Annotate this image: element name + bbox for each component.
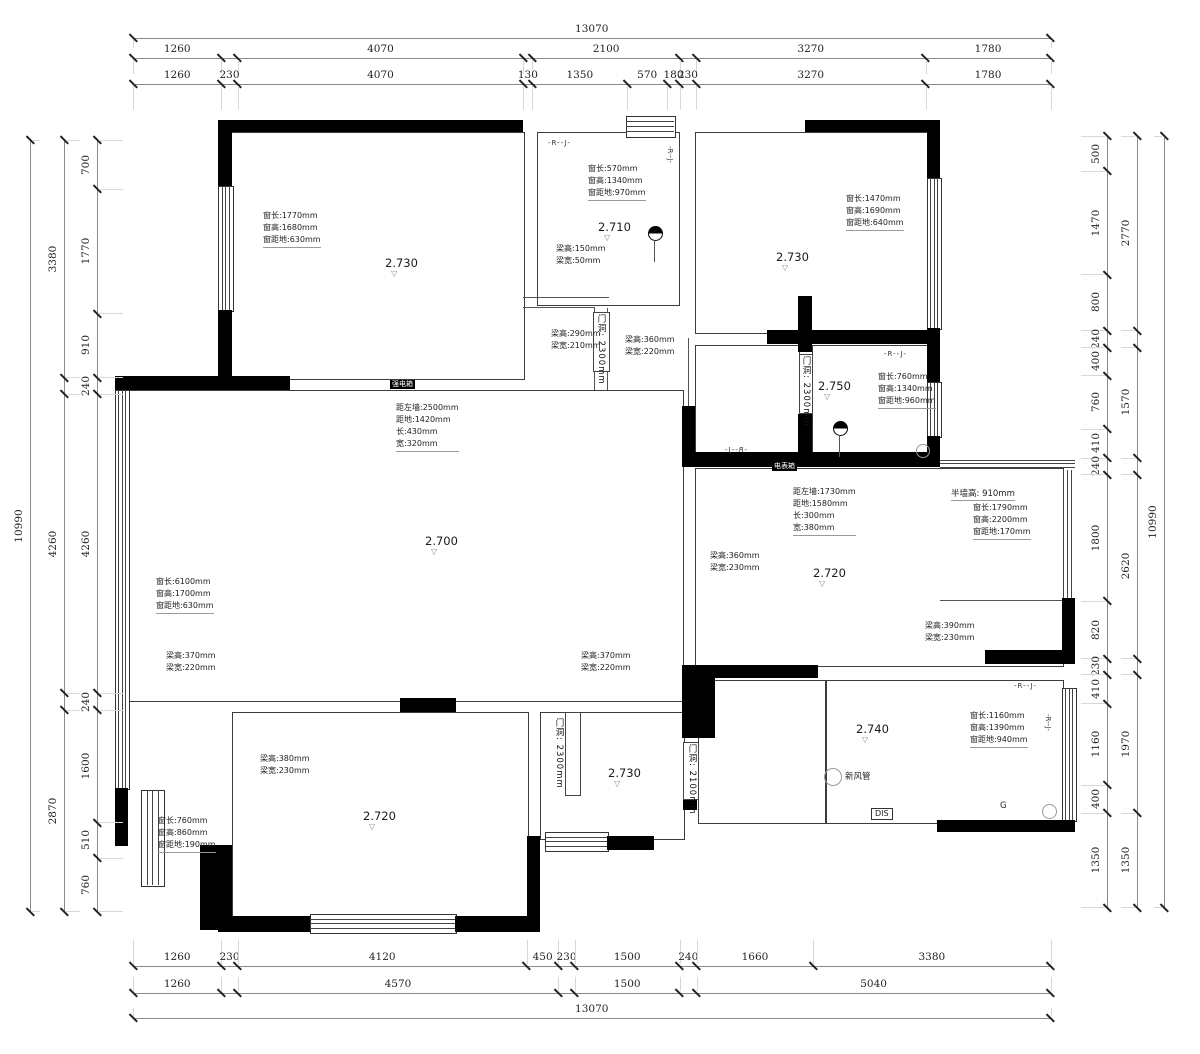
dim-row-right-detail-label: 1350 (1088, 825, 1104, 895)
dim-row-left-major-ext (66, 377, 80, 378)
window-info-line: 窗距地:630mm (156, 600, 214, 612)
window-info-line: 窗距地:960mm (878, 395, 936, 407)
beam-info-line: 梁宽:50mm (556, 255, 606, 267)
dim-row-top-detail-ext (667, 86, 668, 110)
dim-row-right-major-label: 1970 (1118, 709, 1134, 779)
room-elevation-label: 2.720▽ (363, 809, 396, 831)
elevation-triangle-icon: ▽ (782, 264, 809, 272)
dim-row-right-detail-ext (1081, 907, 1105, 908)
beam-info-line: 梁高:370mm (166, 650, 216, 662)
dim-row-bottom-detail-ext (813, 940, 814, 964)
dim-row-right-detail-line (1107, 136, 1108, 907)
elevation-triangle-icon: ▽ (431, 548, 458, 556)
dim-row-top-detail-label: 3270 (771, 69, 851, 81)
ceiling-lamp-stem (654, 240, 655, 262)
dim-row-left-major-ext (66, 394, 80, 395)
window-info-line: 窗距地:640mm (846, 217, 904, 229)
dim-row-right-major-label: 1350 (1118, 825, 1134, 895)
dim-row-top-major-label: 1260 (137, 43, 217, 55)
niche-info-line: 宽:380mm (793, 522, 856, 534)
survey-code-label: -R--J- (666, 146, 674, 163)
window-mullion-line (1067, 470, 1068, 602)
window-mullion-line (229, 186, 230, 310)
window-mullion-line (1069, 688, 1070, 820)
room-outline (225, 132, 525, 380)
dim-row-top-detail-label: 4070 (340, 69, 420, 81)
room-elevation-label: 2.740▽ (856, 722, 889, 744)
dim-row-bottom-detail-label: 4120 (342, 951, 422, 963)
beam-info-line: 梁宽:210mm (551, 340, 601, 352)
wall-line (523, 307, 595, 308)
window-mullion-line (225, 186, 226, 310)
dim-row-right-major-line (1137, 136, 1138, 907)
dim-row-left-detail-label: 240 (78, 351, 94, 421)
window-info-line: 窗长:570mm (588, 163, 646, 175)
window-mullion-line (118, 390, 119, 788)
dim-row-bottom-major-ext (697, 977, 698, 991)
window-info: 窗长:1470mm窗高:1690mm窗距地:640mm (846, 193, 904, 231)
window-mullion-line (937, 178, 938, 328)
elevation-triangle-icon: ▽ (862, 736, 889, 744)
window-info-line: 窗长:1160mm (970, 710, 1028, 722)
dim-row-bottom-total-ext (133, 1008, 134, 1016)
dim-row-right-detail-ext (1081, 813, 1105, 814)
window-symbol (115, 390, 130, 790)
window-mullion-line (310, 923, 455, 924)
dim-row-right-total-ext (1154, 136, 1162, 137)
door-opening-label: 门洞: 2300mm (553, 718, 565, 789)
wall-segment (682, 452, 940, 467)
elevation-triangle-icon: ▽ (824, 393, 851, 401)
beam-info: 梁高:370mm梁宽:220mm (166, 650, 216, 674)
window-symbol (545, 832, 609, 852)
dim-row-top-detail-ext (523, 86, 524, 110)
dim-row-right-detail-ext (1081, 474, 1105, 475)
circle-marker-icon (1042, 804, 1057, 819)
window-mullion-line (122, 390, 123, 788)
wall-segment (115, 788, 128, 846)
window-info: 窗长:760mm窗高:1340mm窗距地:960mm (878, 371, 936, 409)
dim-row-left-total-ext (32, 911, 40, 912)
wall-segment (682, 406, 695, 466)
dim-row-bottom-detail-ext (133, 940, 134, 964)
window-mullion-line (626, 126, 674, 127)
dim-row-bottom-detail-label: 230 (190, 951, 270, 963)
dim-row-bottom-detail-ext (1051, 940, 1052, 964)
dim-row-top-major-ext (133, 60, 134, 74)
dim-row-right-major-ext (1121, 136, 1135, 137)
dim-row-top-detail-label: 1780 (948, 69, 1028, 81)
wall-segment (767, 330, 940, 344)
dim-row-left-detail-label: 240 (78, 667, 94, 737)
window-info-line: 窗高:1690mm (846, 205, 904, 217)
dim-row-bottom-major-ext (558, 977, 559, 991)
beam-info-line: 梁宽:230mm (260, 765, 310, 777)
wall-segment (607, 836, 654, 850)
window-info-line: 窗长:760mm (158, 815, 216, 827)
dim-row-left-major-ext (66, 911, 80, 912)
window-mullion-line (937, 382, 938, 436)
dim-row-left-detail-ext (99, 140, 123, 141)
floor-plan: 1307012604070210032701780126023040701301… (0, 0, 1200, 1054)
window-mullion-line (310, 928, 455, 929)
beam-info-line: 梁高:360mm (625, 334, 675, 346)
dis-box-label: DIS (871, 808, 893, 820)
window-mullion-line (934, 178, 935, 328)
dim-row-right-detail-label: 1470 (1088, 188, 1104, 258)
dim-row-right-major-label: 2770 (1118, 198, 1134, 268)
wall-segment (218, 120, 232, 186)
window-info-line: 窗距地:170mm (973, 526, 1031, 538)
wall-segment (927, 120, 940, 178)
dim-row-right-total-ext (1154, 907, 1162, 908)
dim-row-left-major-ext (66, 693, 80, 694)
dim-row-right-detail-label: 240 (1088, 431, 1104, 501)
dim-row-bottom-major-ext (238, 977, 239, 991)
dim-row-top-detail-ext (926, 86, 927, 110)
beam-info: 梁高:360mm梁宽:220mm (625, 334, 675, 358)
window-mullion-line (940, 467, 1075, 468)
window-symbol (218, 186, 234, 312)
dim-row-top-detail-label: 230 (190, 69, 270, 81)
meter-box-label: 电表箱 (772, 462, 797, 471)
room-elevation-label: 2.730▽ (608, 766, 641, 788)
dim-row-right-detail-ext (1081, 171, 1105, 172)
dim-row-left-detail-label: 760 (78, 850, 94, 920)
circle-marker-icon (824, 768, 842, 786)
beam-info: 梁高:150mm梁宽:50mm (556, 243, 606, 267)
beam-info-line: 梁高:360mm (710, 550, 760, 562)
dim-row-bottom-major-label: 1260 (137, 978, 217, 990)
window-symbol (310, 914, 457, 934)
wall-segment (682, 665, 715, 738)
dim-row-right-total-label: 10990 (1145, 487, 1161, 557)
dim-row-right-detail-ext (1081, 703, 1105, 704)
dim-row-top-major-ext (926, 60, 927, 74)
wall-segment (115, 376, 290, 390)
dim-row-bottom-major-ext (221, 977, 222, 991)
window-info-line: 窗高:1390mm (970, 722, 1028, 734)
dim-row-left-total-label: 10990 (11, 491, 27, 561)
wall-segment (400, 698, 456, 712)
window-info-line: 窗高:1680mm (263, 222, 321, 234)
dim-row-right-major-ext (1121, 674, 1135, 675)
wall-segment (218, 916, 310, 932)
wall-segment (805, 120, 940, 132)
dim-row-left-detail-line (97, 140, 98, 911)
dim-row-right-major-ext (1121, 813, 1135, 814)
beam-info-line: 梁宽:220mm (581, 662, 631, 674)
beam-info-line: 梁高:380mm (260, 753, 310, 765)
dim-row-top-detail-ext (680, 86, 681, 110)
dim-row-left-detail-ext (99, 858, 123, 859)
dim-row-bottom-detail-ext (575, 940, 576, 964)
window-mullion-line (152, 790, 153, 885)
dim-row-left-detail-ext (99, 911, 123, 912)
beam-info-line: 梁宽:230mm (925, 632, 975, 644)
elevation-triangle-icon: ▽ (369, 823, 396, 831)
dim-row-bottom-major-ext (1051, 977, 1052, 991)
elevation-triangle-icon: ▽ (391, 270, 418, 278)
dim-row-top-major-label: 1780 (948, 43, 1028, 55)
window-info: 窗长:570mm窗高:1340mm窗距地:970mm (588, 163, 646, 201)
dim-row-bottom-major-label: 1500 (587, 978, 667, 990)
dim-row-top-major-label: 2100 (566, 43, 646, 55)
window-info: 窗长:1790mm窗高:2200mm窗距地:170mm (973, 502, 1031, 540)
circle-marker-icon (916, 444, 930, 458)
beam-info-line: 梁宽:220mm (166, 662, 216, 674)
window-mullion-line (940, 463, 1075, 464)
dim-row-top-total-line (133, 38, 1051, 39)
dim-row-bottom-total-line (133, 1018, 1051, 1019)
room-elevation-label: 2.750▽ (818, 379, 851, 401)
survey-code-label: -R--J- (1014, 682, 1037, 690)
window-mullion-line (147, 790, 148, 885)
room-outline (695, 345, 800, 457)
niche-info-line: 距地:1420mm (396, 414, 459, 426)
window-mullion-line (545, 846, 607, 847)
dim-row-right-major-ext (1121, 330, 1135, 331)
dim-row-bottom-detail-label: 1660 (715, 951, 795, 963)
dim-row-top-major-label: 4070 (340, 43, 420, 55)
door-opening-label: 门洞: 2300mm (800, 356, 812, 427)
dim-row-left-detail-label: 4260 (78, 509, 94, 579)
room-outline (537, 132, 680, 306)
dim-row-left-major-ext (66, 710, 80, 711)
window-info-line: 窗距地:630mm (263, 234, 321, 246)
window-info: 窗长:1770mm窗高:1680mm窗距地:630mm (263, 210, 321, 248)
dim-row-left-detail-ext (99, 377, 123, 378)
dim-row-top-major-label: 3270 (771, 43, 851, 55)
window-mullion-line (626, 121, 674, 122)
ceiling-lamp-stem (839, 435, 840, 457)
dim-row-left-detail-label: 1770 (78, 216, 94, 286)
niche-info-line: 距左墙:2500mm (396, 402, 459, 414)
dim-row-right-major-ext (1121, 347, 1135, 348)
dim-row-left-major-label: 4260 (45, 509, 61, 579)
dim-row-top-detail-ext (133, 86, 134, 110)
ceiling-lamp-icon (833, 421, 848, 436)
window-info-line: 窗高:2200mm (973, 514, 1031, 526)
beam-info-line: 梁宽:230mm (710, 562, 760, 574)
dim-row-left-detail-ext (99, 822, 123, 823)
room-outline (695, 132, 929, 334)
room-outline (825, 680, 1064, 824)
niche-info: 距左墙:1730mm距地:1580mm长:300mm宽:380mm (793, 486, 856, 536)
dim-row-right-major-label: 2620 (1118, 531, 1134, 601)
beam-info: 梁高:360mm梁宽:230mm (710, 550, 760, 574)
window-info-line: 窗长:1790mm (973, 502, 1031, 514)
dim-row-right-major-label: 1570 (1118, 367, 1134, 437)
dim-row-top-major-line (133, 58, 1051, 59)
window-info-line: 窗高:1340mm (878, 383, 936, 395)
dim-row-left-major-ext (66, 140, 80, 141)
window-info-line: 窗距地:970mm (588, 187, 646, 199)
survey-code-label: -R--J- (1044, 714, 1052, 731)
window-mullion-line (545, 841, 607, 842)
dim-row-right-detail-label: 500 (1088, 119, 1104, 189)
dim-row-top-detail-label: 230 (648, 69, 728, 81)
window-mullion-line (1071, 470, 1072, 602)
beam-info: 梁高:370mm梁宽:220mm (581, 650, 631, 674)
dim-row-right-major-ext (1121, 658, 1135, 659)
dim-row-bottom-detail-label: 3380 (892, 951, 972, 963)
dim-row-bottom-total-ext (1051, 1008, 1052, 1016)
ceiling-lamp-icon (648, 226, 663, 241)
fresh-air-duct-label: 新风管 (845, 770, 871, 782)
dim-row-left-major-label: 2870 (45, 776, 61, 846)
dim-row-bottom-detail-ext (697, 940, 698, 964)
dim-row-top-total-ext (133, 40, 134, 48)
wall-segment (937, 820, 1075, 832)
dim-row-right-detail-label: 1800 (1088, 503, 1104, 573)
survey-code-label: -R--J- (724, 446, 747, 454)
window-mullion-line (310, 919, 455, 920)
dim-row-top-detail-ext (627, 86, 628, 110)
dim-row-bottom-detail-line (133, 966, 1051, 967)
dim-row-right-major-ext (1121, 907, 1135, 908)
dim-row-top-total-label: 13070 (552, 23, 632, 35)
window-symbol (927, 178, 942, 330)
beam-info-line: 梁高:390mm (925, 620, 975, 632)
dim-row-left-detail-ext (99, 693, 123, 694)
window-info-line: 窗长:1470mm (846, 193, 904, 205)
niche-info-line: 距左墙:1730mm (793, 486, 856, 498)
survey-code-label: -R--J- (884, 350, 907, 358)
elevation-triangle-icon: ▽ (604, 234, 631, 242)
dim-row-top-total-ext (1051, 40, 1052, 48)
dim-row-bottom-major-label: 4570 (358, 978, 438, 990)
window-info-line: 窗高:1700mm (156, 588, 214, 600)
beam-info: 梁高:290mm梁宽:210mm (551, 328, 601, 352)
dim-row-top-detail-ext (238, 86, 239, 110)
niche-info-line: 距地:1580mm (793, 498, 856, 510)
window-info-line: 窗长:1770mm (263, 210, 321, 222)
window-info-line: 窗高:860mm (158, 827, 216, 839)
dim-row-bottom-total-label: 13070 (552, 1003, 632, 1015)
window-mullion-line (626, 131, 674, 132)
dim-row-bottom-major-label: 5040 (834, 978, 914, 990)
window-symbol (1062, 688, 1077, 822)
dim-row-left-major-label: 3380 (45, 224, 61, 294)
dim-row-top-detail-ext (696, 86, 697, 110)
window-symbol (626, 116, 676, 138)
beam-info-line: 梁高:370mm (581, 650, 631, 662)
window-info: 窗长:1160mm窗高:1390mm窗距地:940mm (970, 710, 1028, 748)
window-info-line: 窗距地:940mm (970, 734, 1028, 746)
window-info-line: 窗高:1340mm (588, 175, 646, 187)
beam-info-line: 梁高:150mm (556, 243, 606, 255)
dim-row-left-detail-label: 1600 (78, 731, 94, 801)
window-mullion-line (1063, 470, 1064, 602)
window-info-line: 窗长:760mm (878, 371, 936, 383)
room-elevation-label: 2.730▽ (385, 256, 418, 278)
window-info: 窗长:760mm窗高:860mm窗距地:190mm (158, 815, 216, 853)
window-mullion-line (222, 186, 223, 310)
dim-row-bottom-major-ext (680, 977, 681, 991)
window-mullion-line (940, 460, 1075, 461)
wall-segment (527, 836, 540, 932)
room-elevation-label: 2.720▽ (813, 566, 846, 588)
niche-info-line: 长:430mm (396, 426, 459, 438)
wall-segment (218, 120, 523, 132)
dim-row-left-detail-ext (99, 394, 123, 395)
window-info-line: 窗距地:190mm (158, 839, 216, 851)
dim-row-left-total-ext (32, 140, 40, 141)
room-outline (698, 680, 827, 824)
dim-row-top-detail-ext (1051, 86, 1052, 110)
window-info-line: 窗长:6100mm (156, 576, 214, 588)
survey-code-label: -R--J- (548, 139, 571, 147)
wall-segment (985, 650, 1075, 664)
window-mullion-line (125, 390, 126, 788)
dim-row-left-major-line (64, 140, 65, 911)
dim-row-top-detail-ext (532, 86, 533, 110)
beam-info-line: 梁宽:220mm (625, 346, 675, 358)
gas-point-label: G (1000, 801, 1007, 811)
room-elevation-label: 2.700▽ (425, 534, 458, 556)
wall-line (688, 338, 689, 408)
window-mullion-line (930, 178, 931, 328)
dim-row-bottom-major-ext (133, 977, 134, 991)
dim-row-top-major-ext (1051, 60, 1052, 74)
dim-row-left-detail-ext (99, 313, 123, 314)
window-mullion-line (1065, 688, 1066, 820)
dim-row-bottom-major-line (133, 993, 1051, 994)
dim-row-left-detail-ext (99, 710, 123, 711)
dim-row-top-detail-ext (221, 86, 222, 110)
room-elevation-label: 2.710▽ (598, 220, 631, 242)
dim-row-bottom-detail-ext (238, 940, 239, 964)
wall-segment (798, 296, 812, 352)
beam-info: 梁高:380mm梁宽:230mm (260, 753, 310, 777)
beam-info-line: 梁高:290mm (551, 328, 601, 340)
dim-row-right-major-ext (1121, 458, 1135, 459)
dim-row-right-major-ext (1121, 474, 1135, 475)
dim-row-left-detail-ext (99, 189, 123, 190)
window-mullion-line (1072, 688, 1073, 820)
dim-row-right-total-line (1164, 136, 1165, 907)
half-wall-height-label: 半墙高: 910mm (951, 487, 1015, 501)
dim-row-top-detail-line (133, 84, 1051, 85)
elevation-triangle-icon: ▽ (614, 780, 641, 788)
wall-line (940, 600, 1062, 601)
door-opening-label: 门洞: 2300mm (595, 314, 607, 385)
wall-segment (712, 665, 818, 678)
strong-electric-box-label: 强电箱 (390, 380, 415, 389)
dim-row-left-detail-label: 700 (78, 130, 94, 200)
beam-info: 梁高:390mm梁宽:230mm (925, 620, 975, 644)
niche-info: 距左墙:2500mm距地:1420mm长:430mm宽:320mm (396, 402, 459, 452)
door-opening-label: 门洞: 2100mm (686, 744, 698, 815)
niche-info-line: 宽:320mm (396, 438, 459, 450)
door-opening (565, 712, 581, 796)
wall-line (523, 297, 609, 298)
window-info: 窗长:6100mm窗高:1700mm窗距地:630mm (156, 576, 214, 614)
dim-row-bottom-major-ext (575, 977, 576, 991)
dim-row-right-detail-label: 400 (1088, 764, 1104, 834)
dim-row-left-total-line (30, 140, 31, 911)
niche-info-line: 长:300mm (793, 510, 856, 522)
room-elevation-label: 2.730▽ (776, 250, 809, 272)
elevation-triangle-icon: ▽ (819, 580, 846, 588)
window-mullion-line (545, 837, 607, 838)
